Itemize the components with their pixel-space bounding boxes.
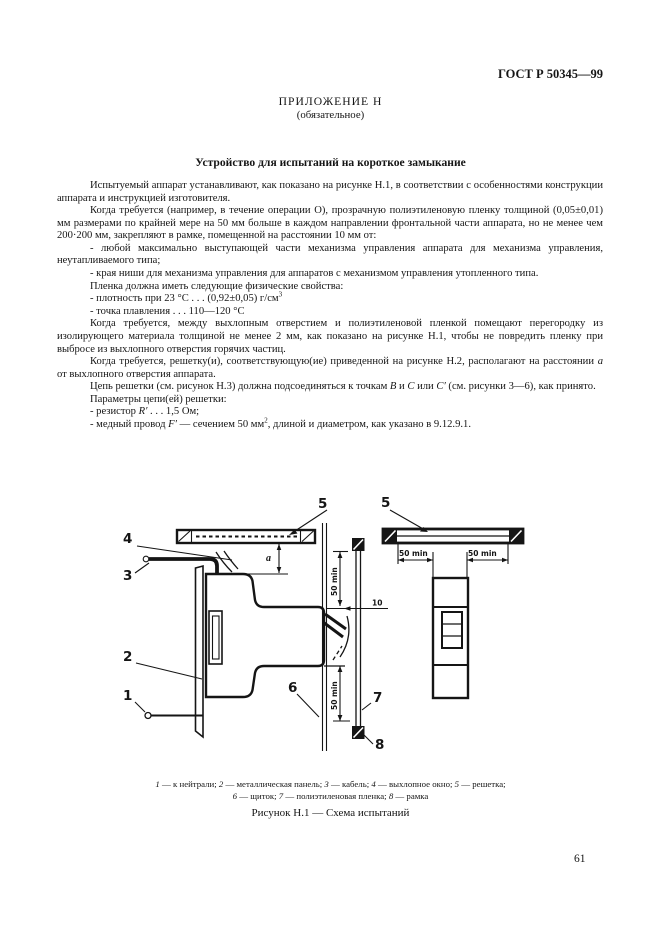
figure-caption: Рисунок Н.1 — Схема испытаний: [0, 807, 661, 819]
arrowhead: [427, 558, 433, 563]
apparatus-body: [206, 574, 324, 697]
mounting-bracket: [209, 611, 222, 664]
leader-line: [390, 510, 425, 530]
dimension-10: 10: [327, 599, 388, 611]
legend-line: 1 — к нейтрали; 2 — металлическая панель…: [0, 779, 661, 791]
arrowhead: [398, 558, 404, 563]
dimension-label: 50 min: [330, 567, 339, 596]
legend-line: 6 — щиток; 7 — полиэтиленовая пленка; 8 …: [0, 791, 661, 803]
dimension-50min-bottom: 50 min: [324, 666, 350, 721]
dimension-50min-top: 50 min: [330, 552, 348, 607]
dimension-50min-right: 50 min: [467, 543, 508, 578]
handle-travel-dashed: [333, 646, 342, 660]
dimension-label: 50 min: [468, 549, 497, 558]
callout-7: 7: [373, 690, 382, 706]
callout-5: 5: [318, 496, 327, 512]
cable-end-terminal: [143, 556, 149, 562]
film-frame-bottom: [352, 726, 365, 739]
leader-line: [136, 663, 202, 679]
dimension-label: 50 min: [330, 681, 339, 710]
film-frame-top: [352, 538, 365, 551]
callout-1: 1: [123, 688, 132, 704]
callout-8: 8: [375, 737, 384, 753]
arrowhead: [338, 552, 343, 558]
arrowhead: [338, 600, 343, 606]
callout-5: 5: [381, 495, 390, 511]
neutral-terminal-circle: [145, 713, 151, 719]
callout-2: 2: [123, 649, 132, 665]
dimension-50min-left: 50 min: [398, 543, 433, 578]
arrowhead: [338, 666, 343, 672]
front-window: [442, 612, 462, 648]
page-number: 61: [574, 853, 586, 865]
document-page: ГОСТ Р 50345—99 ПРИЛОЖЕНИЕ Н (обязательн…: [0, 0, 661, 936]
bracket-inner: [213, 616, 220, 659]
callout-3: 3: [123, 568, 132, 584]
arrowhead: [502, 558, 508, 563]
figure-legend: 1 — к нейтрали; 2 — металлическая панель…: [0, 779, 661, 803]
dimension-a-label: a: [266, 553, 271, 564]
leader-line: [135, 702, 145, 712]
leader-line: [364, 735, 373, 744]
arrowhead: [338, 715, 343, 721]
metal-panel: [196, 566, 204, 737]
cable: [149, 559, 217, 574]
arrowhead: [277, 544, 282, 550]
dimension-a: a: [266, 544, 281, 573]
dimension-label: 10: [372, 599, 382, 608]
apparatus-front-view: [433, 578, 468, 698]
leader-line: [297, 694, 319, 717]
exhaust-window: [216, 551, 238, 572]
dimension-label: 50 min: [399, 549, 428, 558]
grille-front-view: [383, 529, 523, 543]
leader-line: [362, 703, 371, 710]
callout-6: 6: [288, 680, 297, 696]
arrowhead: [344, 606, 351, 611]
callout-4: 4: [123, 531, 132, 547]
arrowhead: [467, 558, 473, 563]
arrowhead: [277, 567, 282, 573]
polyethylene-film: [356, 551, 361, 726]
leader-line: [135, 563, 149, 573]
